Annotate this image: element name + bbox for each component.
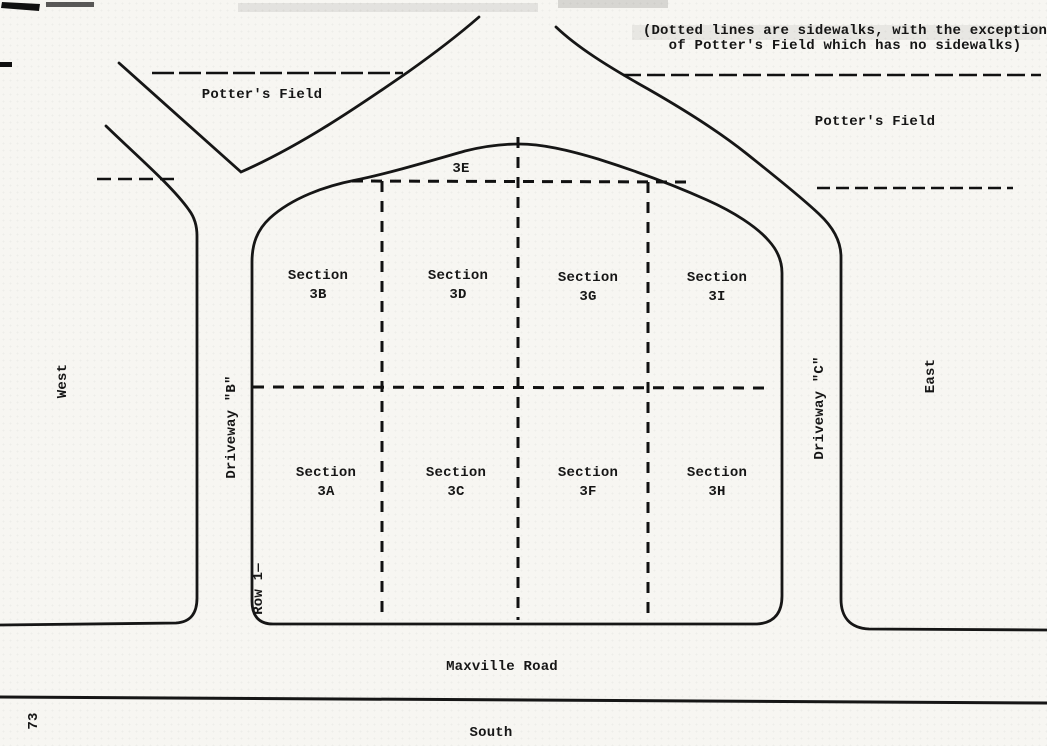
potters-field-left-label: Potter's Field [202, 87, 322, 103]
driveway-c-east-edge [556, 27, 1047, 630]
section-word: Section [558, 269, 618, 288]
section-word: Section [428, 267, 488, 286]
map-note: (Dotted lines are sidewalks, with the ex… [635, 24, 1047, 53]
scan-artifact-streak [558, 0, 668, 8]
potters-field-right-label: Potter's Field [815, 114, 935, 130]
driveway-b-west-edge [0, 126, 197, 625]
maxville-road-line [0, 697, 1047, 703]
section-3i-label: Section 3I [687, 269, 747, 307]
section-word: Section [296, 464, 356, 483]
section-word: Section [288, 267, 348, 286]
scan-artifact-mark [46, 2, 94, 7]
page-number: 73 [26, 712, 42, 729]
section-word: Section [558, 464, 618, 483]
section-3f-label: Section 3F [558, 464, 618, 502]
section-3g-label: Section 3G [558, 269, 618, 307]
section-code: 3H [687, 483, 747, 502]
scan-artifact-blob [1, 2, 40, 11]
section-code: 3I [687, 288, 747, 307]
section-word: Section [687, 269, 747, 288]
section-code: 3F [558, 483, 618, 502]
south-label: South [469, 725, 512, 741]
section-code: 3G [558, 288, 618, 307]
east-label: East [923, 359, 939, 393]
section-code: 3C [426, 483, 486, 502]
driveway-c-label: Driveway "C" [812, 356, 828, 459]
scan-artifact-streak [238, 3, 538, 12]
section-word: Section [687, 464, 747, 483]
cemetery-section-map: (Dotted lines are sidewalks, with the ex… [0, 0, 1047, 746]
section-code: 3B [288, 286, 348, 305]
row-1-label: Row 1— [251, 563, 267, 615]
sidewalk-dashed-row-divider [253, 387, 770, 388]
maxville-road-label: Maxville Road [446, 659, 558, 675]
section-3a-label: Section 3A [296, 464, 356, 502]
section-3h-label: Section 3H [687, 464, 747, 502]
section-code: 3A [296, 483, 356, 502]
west-label: West [55, 364, 71, 398]
section-3b-label: Section 3B [288, 267, 348, 305]
section-3c-label: Section 3C [426, 464, 486, 502]
map-line-drawing [0, 0, 1047, 746]
area-3e-label: 3E [452, 161, 469, 177]
map-note-line1: (Dotted lines are sidewalks, with the ex… [635, 24, 1047, 39]
driveway-b-label: Driveway "B" [224, 375, 240, 478]
scan-artifact-tick [0, 62, 12, 67]
section-3d-label: Section 3D [428, 267, 488, 305]
section-word: Section [426, 464, 486, 483]
map-note-line2: of Potter's Field which has no sidewalks… [635, 39, 1047, 54]
section-code: 3D [428, 286, 488, 305]
